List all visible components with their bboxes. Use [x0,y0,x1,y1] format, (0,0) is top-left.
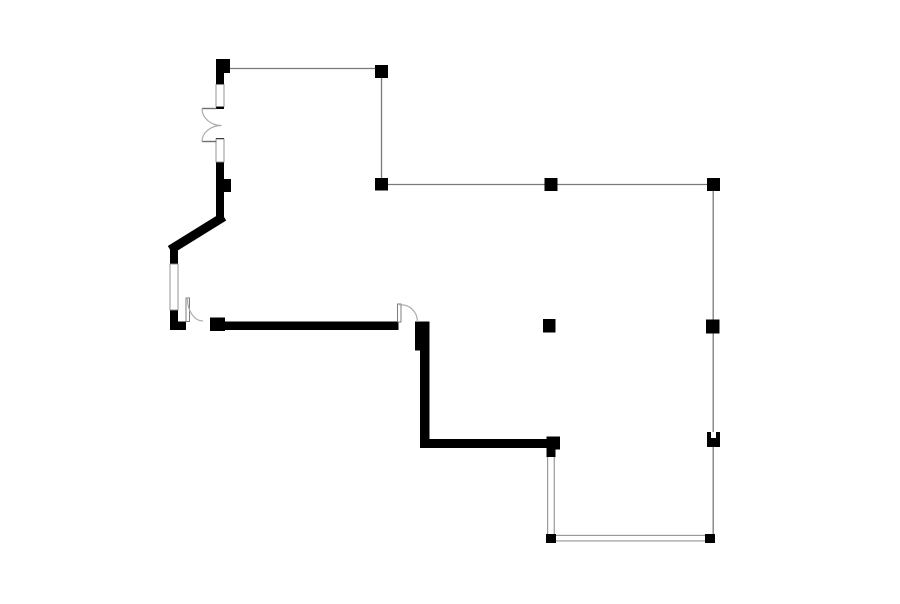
column-grid-right-top [707,178,720,191]
wall-main-horizontal [225,322,399,331]
column-top-right [375,65,388,78]
column-grid-left [375,178,388,191]
door-jamb-upper [216,85,224,107]
floor-plan-page [0,0,900,604]
column-wall-end [547,437,561,450]
column-main-corner [415,322,429,351]
door-leaf-right [398,304,402,322]
wall-bottom-horizontal [420,439,547,448]
column-door-left [210,318,225,332]
column-notch [711,432,716,438]
column-glass-corner [546,534,556,543]
glass-wall-horizontal [556,535,705,542]
column-grid-mid-top [545,178,558,191]
glass-wall-vertical [547,457,555,535]
door-swing-arc-double-upper [202,109,222,126]
wall-top-left-stub [216,71,224,86]
column-top-left [216,59,230,73]
column-corner-bottom-right [705,534,715,543]
window-left [170,264,178,310]
door-swing-arc-right [400,305,418,322]
column-interior [543,319,556,333]
column-wall-bump [222,179,231,192]
column-grid-right-mid [706,320,720,334]
door-jamb-lower [216,139,224,162]
floor-plan-canvas [0,0,900,604]
wall-bottom-left-corner [170,322,186,331]
column-wall-end-lower [547,449,556,457]
wall-diagonal [174,219,220,248]
